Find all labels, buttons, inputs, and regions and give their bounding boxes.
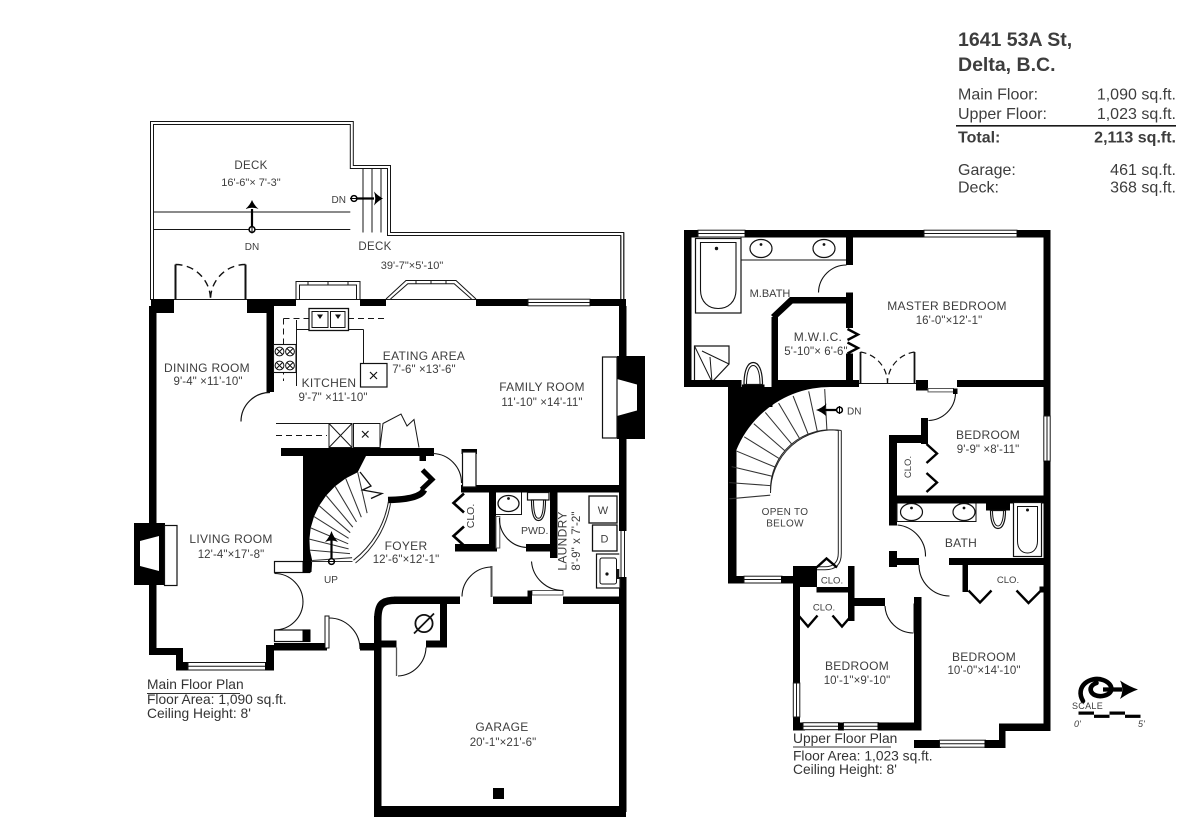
svg-text:FAMILY ROOM: FAMILY ROOM (499, 380, 585, 394)
svg-text:CLO.: CLO. (997, 575, 1019, 586)
svg-text:DECK: DECK (234, 160, 267, 172)
svg-text:8'-9" x 7'-2": 8'-9" x 7'-2" (571, 511, 583, 570)
svg-text:UP: UP (324, 575, 338, 586)
svg-text:10'-1"×9'-10": 10'-1"×9'-10" (824, 675, 891, 687)
svg-text:FOYER: FOYER (385, 539, 428, 553)
svg-text:368 sq.ft.: 368 sq.ft. (1110, 180, 1176, 197)
svg-text:9'-9" ×8'-11": 9'-9" ×8'-11" (957, 444, 1020, 456)
svg-text:BEDROOM: BEDROOM (952, 650, 1016, 664)
svg-text:9'-7" ×11'-10": 9'-7" ×11'-10" (298, 392, 367, 404)
svg-text:2,113 sq.ft.: 2,113 sq.ft. (1094, 130, 1176, 147)
svg-text:Upper Floor Plan: Upper Floor Plan (793, 731, 897, 746)
svg-text:KITCHEN: KITCHEN (302, 376, 357, 390)
svg-text:DN: DN (332, 195, 346, 206)
svg-text:BELOW: BELOW (766, 519, 804, 530)
svg-text:M.BATH: M.BATH (750, 288, 791, 300)
svg-text:BATH: BATH (945, 536, 977, 550)
svg-text:DN: DN (847, 407, 861, 418)
svg-text:PWD.: PWD. (521, 525, 548, 537)
svg-text:16'-6"× 7'-3": 16'-6"× 7'-3" (221, 177, 280, 189)
svg-text:Floor Area: 1,090 sq.ft.: Floor Area: 1,090 sq.ft. (147, 692, 287, 707)
svg-text:39'-7"×5'-10": 39'-7"×5'-10" (381, 260, 444, 272)
svg-text:1,023 sq.ft.: 1,023 sq.ft. (1097, 106, 1176, 123)
svg-text:Deck:: Deck: (958, 180, 999, 197)
svg-text:Garage:: Garage: (958, 162, 1016, 179)
svg-text:1641 53A St,: 1641 53A St, (958, 29, 1072, 51)
svg-text:461 sq.ft.: 461 sq.ft. (1110, 162, 1176, 179)
svg-text:EATING AREA: EATING AREA (383, 349, 465, 363)
svg-text:5': 5' (1138, 719, 1145, 729)
svg-text:CLO.: CLO. (813, 603, 835, 614)
svg-text:Main Floor:: Main Floor: (958, 87, 1038, 104)
svg-text:BEDROOM: BEDROOM (956, 428, 1020, 442)
svg-text:Ceiling Height: 8': Ceiling Height: 8' (793, 762, 897, 777)
svg-text:16'-0"×12'-1": 16'-0"×12'-1" (916, 315, 983, 327)
svg-text:SCALE: SCALE (1072, 701, 1103, 711)
svg-text:Delta, B.C.: Delta, B.C. (958, 54, 1056, 76)
svg-text:M.W.I.C.: M.W.I.C. (794, 330, 842, 344)
svg-text:LAUNDRY: LAUNDRY (556, 511, 570, 570)
svg-text:GARAGE: GARAGE (475, 720, 528, 734)
svg-text:11'-10" ×14'-11": 11'-10" ×14'-11" (501, 397, 582, 409)
svg-text:Main Floor Plan: Main Floor Plan (147, 677, 244, 692)
svg-text:0': 0' (1074, 719, 1081, 729)
svg-text:CLO.: CLO. (821, 576, 843, 587)
svg-text:DECK: DECK (358, 241, 391, 253)
svg-text:20'-1"×21'-6": 20'-1"×21'-6" (470, 737, 537, 749)
svg-text:CLO.: CLO. (903, 456, 914, 478)
svg-text:LIVING ROOM: LIVING ROOM (189, 532, 272, 546)
svg-text:1,090 sq.ft.: 1,090 sq.ft. (1097, 87, 1176, 104)
svg-text:Upper Floor:: Upper Floor: (958, 106, 1047, 123)
svg-text:10'-0"×14'-10": 10'-0"×14'-10" (947, 665, 1020, 677)
svg-text:W: W (598, 505, 609, 517)
svg-text:5'-10"× 6'-6": 5'-10"× 6'-6" (784, 346, 847, 358)
svg-text:Total:: Total: (958, 130, 1000, 147)
svg-text:DN: DN (245, 242, 259, 253)
svg-text:D: D (601, 534, 609, 546)
svg-text:9'-4" ×11'-10": 9'-4" ×11'-10" (173, 376, 242, 388)
svg-text:BEDROOM: BEDROOM (825, 659, 889, 673)
svg-text:DINING ROOM: DINING ROOM (164, 361, 250, 375)
svg-text:12'-6"×12'-1": 12'-6"×12'-1" (373, 554, 440, 566)
svg-text:12'-4"×17'-8": 12'-4"×17'-8" (198, 549, 265, 561)
svg-text:CLO.: CLO. (465, 504, 477, 529)
svg-text:7'-6" ×13'-6": 7'-6" ×13'-6" (392, 364, 455, 376)
svg-text:OPEN TO: OPEN TO (762, 507, 809, 518)
svg-text:Ceiling Height: 8': Ceiling Height: 8' (147, 706, 251, 721)
svg-text:MASTER BEDROOM: MASTER BEDROOM (887, 299, 1007, 313)
